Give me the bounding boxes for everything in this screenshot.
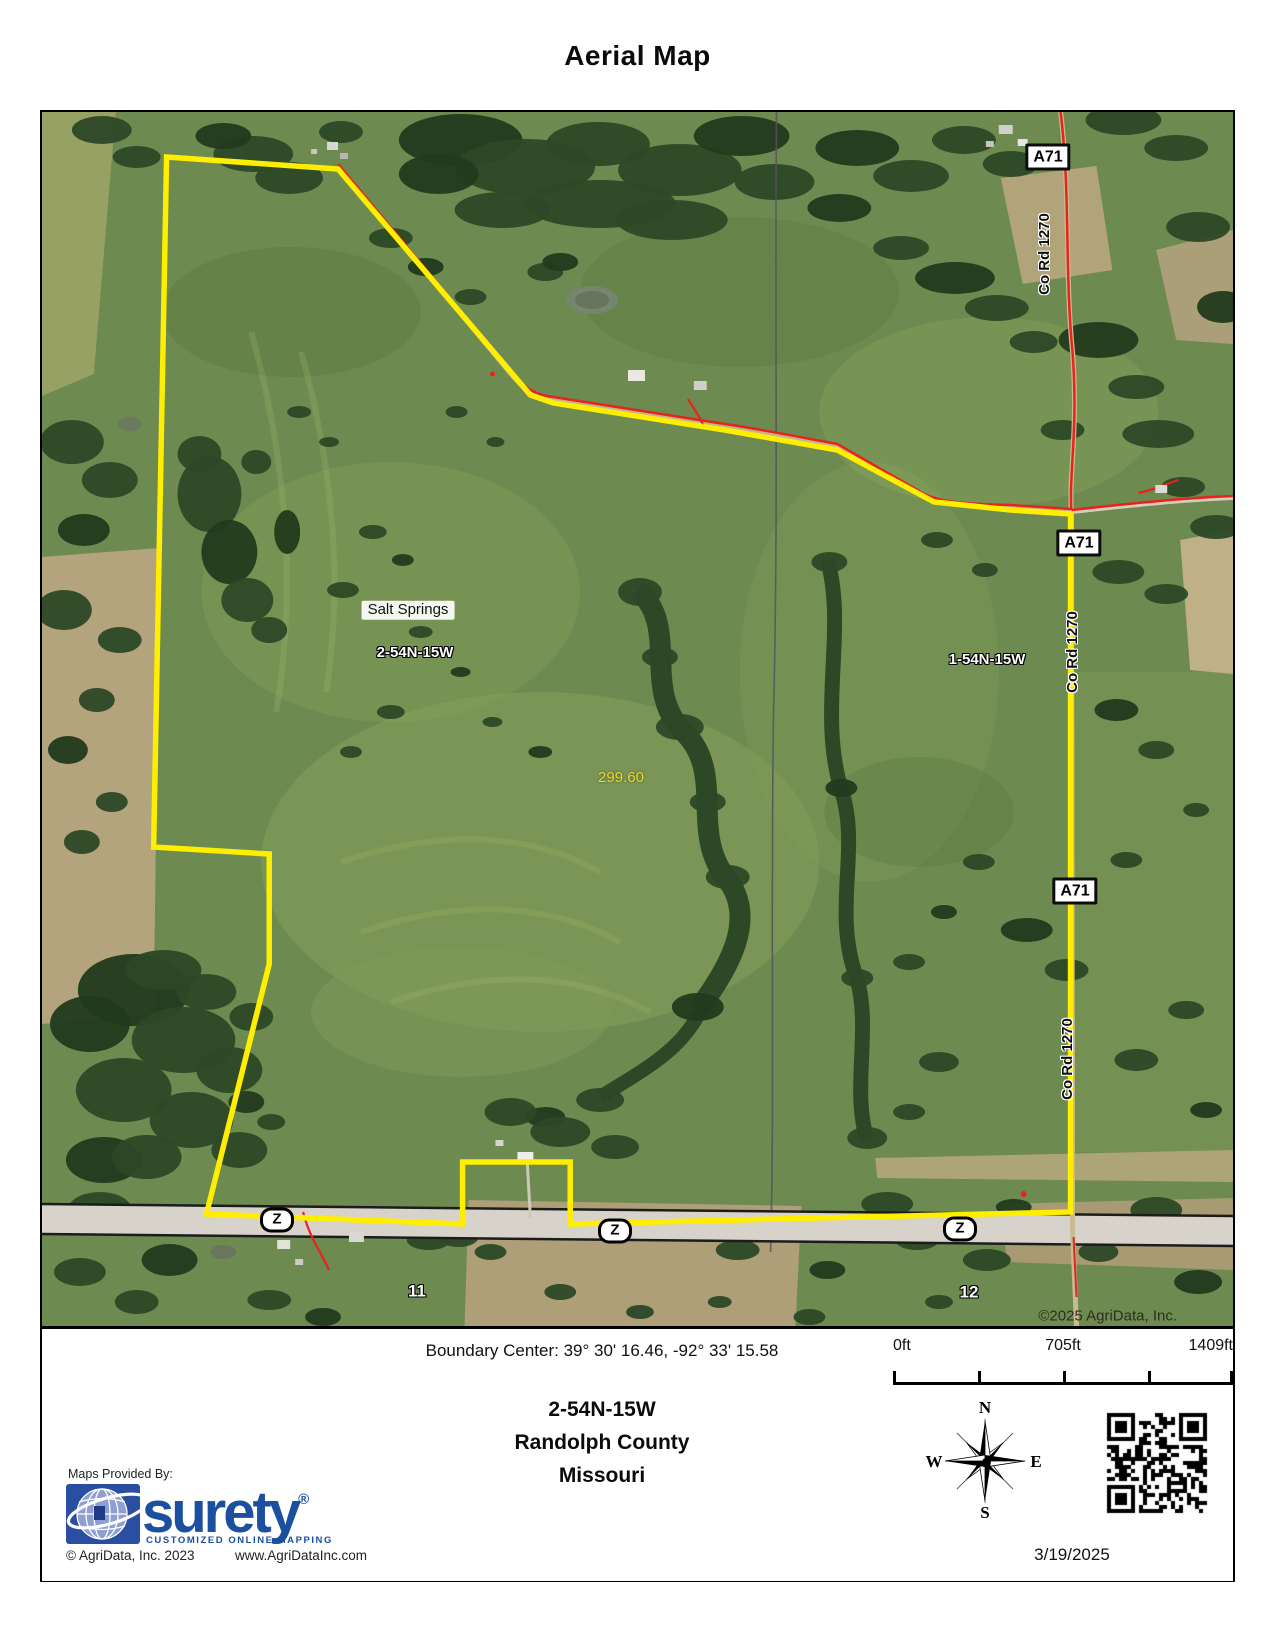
aerial-map: A71 Co Rd 1270 A71 Co Rd 1270 A71 Co Rd … <box>42 112 1233 1329</box>
qr-code <box>1103 1409 1211 1517</box>
map-frame: A71 Co Rd 1270 A71 Co Rd 1270 A71 Co Rd … <box>40 110 1235 1582</box>
section-number-11: 11 <box>408 1283 426 1302</box>
route-z-marker-2: Z <box>598 1219 632 1244</box>
location-block: 2-54N-15W Randolph County Missouri <box>202 1393 1002 1492</box>
scale-label-middle: 705ft <box>893 1337 1233 1355</box>
aerial-map-page: Aerial Map <box>0 0 1275 1650</box>
acreage-label: 299.60 <box>598 770 644 787</box>
agridata-copyright: © AgriData, Inc. 2023 <box>66 1548 195 1563</box>
scale-bar: 0ft 705ft 1409ft <box>893 1337 1233 1393</box>
agridata-website: www.AgriDataInc.com <box>235 1548 367 1563</box>
compass-w-label: W <box>926 1452 943 1471</box>
township-label: 2-54N-15W <box>202 1393 1002 1426</box>
scale-bar-line <box>893 1370 1233 1385</box>
map-copyright: ©2025 AgriData, Inc. <box>1038 1308 1177 1325</box>
footer: Boundary Center: 39° 30' 16.46, -92° 33'… <box>42 1329 1233 1581</box>
page-title: Aerial Map <box>0 40 1275 72</box>
section-label-east: 1-54N-15W <box>949 652 1026 669</box>
map-date: 3/19/2025 <box>967 1545 1177 1565</box>
compass-n-label: N <box>979 1399 992 1417</box>
surety-tagline: CUSTOMIZED ONLINE MAPPING <box>146 1535 333 1546</box>
road-name-co-rd-1270-south: Co Rd 1270 <box>1060 1018 1077 1100</box>
highway-sign-a71-north: A71 <box>1025 144 1070 171</box>
highway-sign-a71-middle: A71 <box>1056 530 1101 557</box>
surety-globe-icon <box>66 1484 140 1544</box>
section-number-12: 12 <box>960 1284 979 1303</box>
route-z-marker-1: Z <box>260 1208 294 1233</box>
county-label: Randolph County <box>202 1426 1002 1459</box>
state-label: Missouri <box>202 1459 1002 1492</box>
road-name-co-rd-1270-north: Co Rd 1270 <box>1037 213 1054 295</box>
aerial-imagery <box>42 112 1233 1326</box>
compass-s-label: S <box>980 1503 989 1522</box>
road-name-co-rd-1270-middle: Co Rd 1270 <box>1065 611 1082 693</box>
registered-mark: ® <box>298 1491 309 1508</box>
compass-rose: N E S W <box>923 1399 1047 1523</box>
compass-e-label: E <box>1030 1452 1041 1471</box>
section-label-west: 2-54N-15W <box>377 645 454 662</box>
surety-brand: surety® <box>142 1471 309 1542</box>
place-label-salt-springs: Salt Springs <box>362 601 455 620</box>
route-z-marker-3: Z <box>943 1217 977 1242</box>
highway-sign-a71-south: A71 <box>1052 878 1097 905</box>
scale-label-end: 1409ft <box>1189 1337 1233 1355</box>
